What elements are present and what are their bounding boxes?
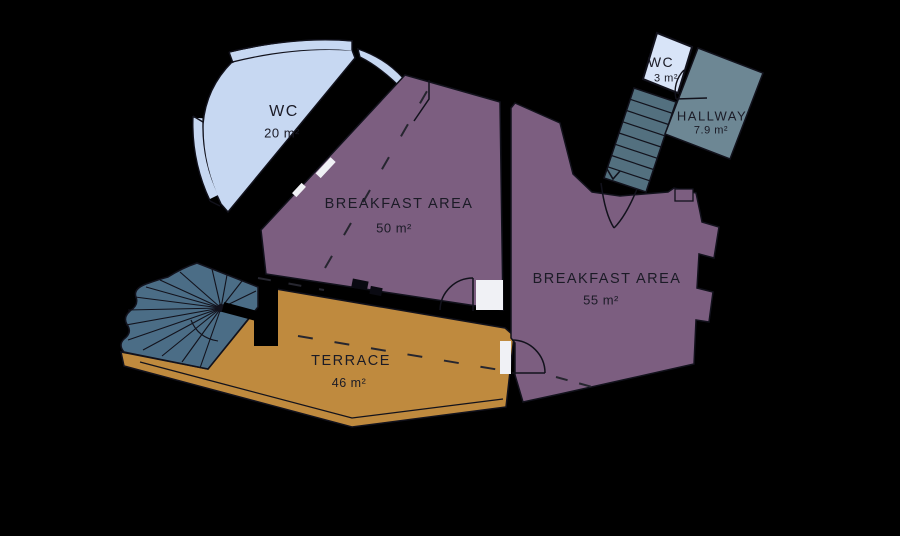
room-area-terrace: 46 m² xyxy=(332,377,366,390)
room-label-breakfast-2: BREAKFAST AREA xyxy=(533,272,682,287)
door-opening xyxy=(500,341,511,374)
room-area-breakfast-2: 55 m² xyxy=(583,294,619,307)
door-opening xyxy=(476,280,503,310)
room-area-wc-small: 3 m² xyxy=(654,74,678,85)
room-area-hallway: 7.9 m² xyxy=(694,126,728,137)
room-label-terrace: TERRACE xyxy=(311,354,391,369)
room-label-hallway: HALLWAY xyxy=(677,110,747,123)
floor-plan: WC 20 m² BREAKFAST AREA 50 m² BREAKFAST … xyxy=(0,0,900,536)
window-niche xyxy=(675,189,693,201)
room-label-wc-small: WC xyxy=(648,55,674,69)
floor-plan-canvas xyxy=(0,0,900,536)
room-label-wc-large: WC xyxy=(269,104,299,120)
room-area-wc-large: 20 m² xyxy=(264,127,300,140)
room-area-breakfast-1: 50 m² xyxy=(376,222,412,235)
room-label-breakfast-1: BREAKFAST AREA xyxy=(325,197,474,212)
